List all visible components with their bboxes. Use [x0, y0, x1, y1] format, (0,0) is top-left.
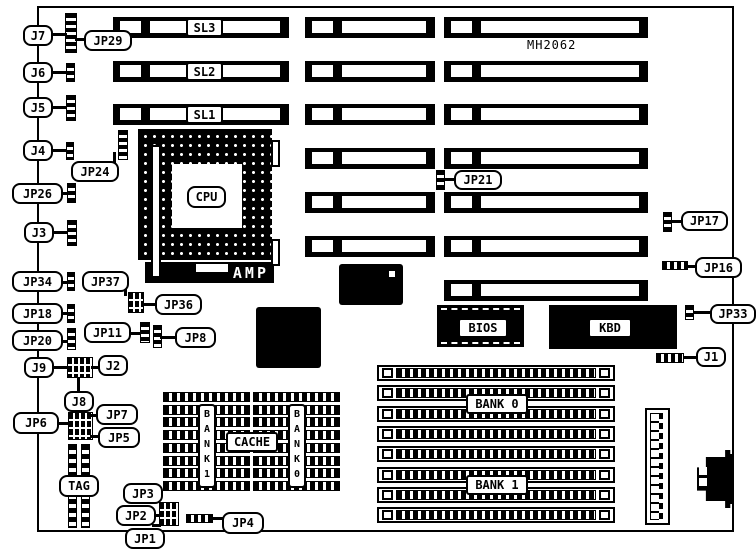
simm-clip-left: [382, 490, 393, 500]
simm-contacts: [396, 429, 596, 439]
label-jp34: JP34: [12, 271, 63, 292]
simm-contacts: [396, 510, 596, 520]
label-jp36: JP36: [155, 294, 202, 315]
din-notch-2: [699, 478, 707, 486]
simm-clip-right: [599, 449, 610, 459]
label-jp7: JP7: [96, 404, 138, 425]
simm-clip-right: [599, 368, 610, 378]
label-jp26: JP26: [12, 183, 63, 204]
jp20-jumper: [67, 328, 76, 350]
simm-clip-left: [382, 510, 393, 520]
slot-key-notch: [333, 104, 342, 125]
slot-key-notch: [141, 17, 150, 38]
label-j4: J4: [23, 140, 53, 161]
label-jp11: JP11: [84, 322, 131, 343]
slot-stripe: [312, 152, 426, 164]
slot-key-notch: [333, 17, 342, 38]
expansion-slot: [305, 148, 435, 169]
slot-key-notch: [141, 61, 150, 82]
slot-label-sl2: SL2: [186, 62, 223, 81]
slot-key-notch: [333, 192, 342, 213]
power-pin-dashes: [659, 413, 663, 520]
label-jp18: JP18: [12, 303, 63, 324]
pin1-dot: [389, 271, 395, 277]
label-j6: J6: [23, 62, 53, 83]
din-notch-1: [699, 467, 707, 475]
expansion-slot: [444, 280, 648, 301]
jp34-jumper: [67, 272, 75, 291]
qfp-chip-1: [339, 264, 403, 305]
slot-stripe: [312, 108, 426, 120]
label-j8: J8: [64, 391, 94, 412]
slot-key-notch: [472, 104, 481, 125]
j9-j2-jumper: [67, 357, 93, 378]
label-jp4: JP4: [222, 512, 264, 534]
j3-jumper: [67, 220, 77, 246]
slot-key-notch: [472, 148, 481, 169]
simm-clip-right: [599, 388, 610, 398]
simm-clip-left: [382, 409, 393, 419]
j5-jumper: [66, 95, 76, 121]
slot-stripe: [312, 65, 426, 77]
label-bank1: BANK 1: [466, 475, 528, 495]
leader-jp8: [160, 336, 176, 339]
expansion-slot: [305, 236, 435, 257]
leader-jp1: [152, 524, 161, 527]
label-jp8: JP8: [175, 327, 216, 348]
expansion-slot: [444, 148, 648, 169]
simm-clip-right: [599, 409, 610, 419]
simm-clip-right: [599, 429, 610, 439]
power-connector: [645, 408, 670, 525]
label-jp2: JP2: [116, 505, 156, 526]
simm-contacts: [396, 368, 596, 378]
label-jp24: JP24: [71, 161, 119, 182]
slot-stripe: [312, 196, 426, 208]
label-jp33: JP33: [710, 304, 756, 324]
label-jp16: JP16: [695, 257, 742, 278]
amp-connector: AMP: [145, 262, 274, 283]
simm-clip-right: [599, 490, 610, 500]
slot-key-notch: [333, 148, 342, 169]
leader-jp33: [693, 311, 711, 314]
leader-j1: [683, 356, 697, 359]
slot-stripe: [312, 21, 426, 33]
slot-stripe: [312, 240, 426, 252]
slot-label-sl3: SL3: [186, 18, 223, 37]
slot-key-notch: [333, 236, 342, 257]
slot-key-notch: [472, 280, 481, 301]
simm-clip-left: [382, 429, 393, 439]
socket-tab-bottom: [271, 239, 280, 266]
leader-j3: [52, 231, 68, 234]
cache-chip: [253, 392, 340, 402]
simm-socket: [377, 365, 615, 381]
jp24-jumper: [118, 130, 128, 160]
leader-j4: [51, 149, 67, 152]
leader-j5: [51, 106, 67, 109]
label-jp3: JP3: [123, 483, 163, 504]
label-j3: J3: [24, 222, 54, 243]
simm-socket: [377, 507, 615, 523]
label-jp5: JP5: [98, 427, 140, 448]
simm-clip-left: [382, 470, 393, 480]
slot-key-notch: [333, 61, 342, 82]
expansion-slot: [305, 104, 435, 125]
socket-tab-top: [271, 140, 280, 167]
leader-j6: [51, 71, 67, 74]
label-jp6: JP6: [13, 412, 59, 434]
label-tag: TAG: [59, 475, 99, 497]
label-j1: J1: [696, 347, 726, 367]
label-bios: BIOS: [458, 318, 508, 338]
label-jp17: JP17: [681, 211, 728, 231]
label-jp29: JP29: [84, 30, 132, 51]
label-cache: CACHE: [226, 432, 278, 452]
label-j7: J7: [23, 25, 53, 46]
simm-socket: [377, 426, 615, 442]
jp18-jumper: [67, 304, 75, 323]
cpu-label: CPU: [187, 186, 226, 208]
expansion-slot: [305, 17, 435, 38]
expansion-slot: [444, 61, 648, 82]
cache-chip: [163, 392, 250, 402]
simm-clip-left: [382, 388, 393, 398]
slot-key-notch: [472, 17, 481, 38]
jp11-jumper: [140, 322, 150, 343]
label-bank0-vertical: B A N K 0: [288, 404, 306, 488]
jp26-jumper: [67, 183, 76, 203]
jp1-jp2-jp3-jumper: [159, 502, 179, 526]
simm-socket: [377, 446, 615, 462]
expansion-slot: [305, 192, 435, 213]
expansion-slot: [444, 192, 648, 213]
simm-clip-left: [382, 368, 393, 378]
leader-j9: [52, 366, 68, 369]
zif-lever: [151, 145, 161, 278]
simm-clip-right: [599, 470, 610, 480]
expansion-slot: [444, 236, 648, 257]
slot-label-sl1: SL1: [186, 105, 223, 124]
jp16-jumper: [662, 261, 688, 270]
leader-j8: [77, 377, 80, 392]
label-bank1-vertical: B A N K 1: [198, 404, 216, 488]
j6-jumper: [66, 63, 75, 82]
expansion-slot: [444, 17, 648, 38]
label-jp1: JP1: [125, 528, 165, 549]
slot-key-notch: [472, 192, 481, 213]
board-title: MH2062: [527, 38, 576, 52]
j4-jumper: [66, 142, 74, 160]
motherboard-diagram: MH2062 SL3SL2SL1CPUAMPJ7JP29J6J5J4JP24JP…: [0, 0, 756, 556]
label-j5: J5: [23, 97, 53, 118]
amp-window: [196, 264, 228, 272]
expansion-slot: [444, 104, 648, 125]
expansion-slot: [305, 61, 435, 82]
j1-jumper: [656, 353, 684, 363]
slot-key-notch: [472, 61, 481, 82]
label-kbd: KBD: [588, 318, 632, 338]
qfp-chip-2: [256, 307, 321, 368]
slot-key-notch: [141, 104, 150, 125]
label-jp21: JP21: [454, 170, 502, 190]
simm-clip-left: [382, 449, 393, 459]
simm-contacts: [396, 449, 596, 459]
label-bank0: BANK 0: [466, 394, 528, 414]
jp4-jumper: [186, 514, 213, 523]
label-jp20: JP20: [12, 330, 63, 351]
label-j2: J2: [98, 355, 128, 376]
label-j9: J9: [24, 357, 54, 378]
leader-j7: [51, 33, 67, 36]
simm-clip-right: [599, 510, 610, 520]
slot-key-notch: [472, 236, 481, 257]
label-jp37: JP37: [82, 271, 129, 292]
